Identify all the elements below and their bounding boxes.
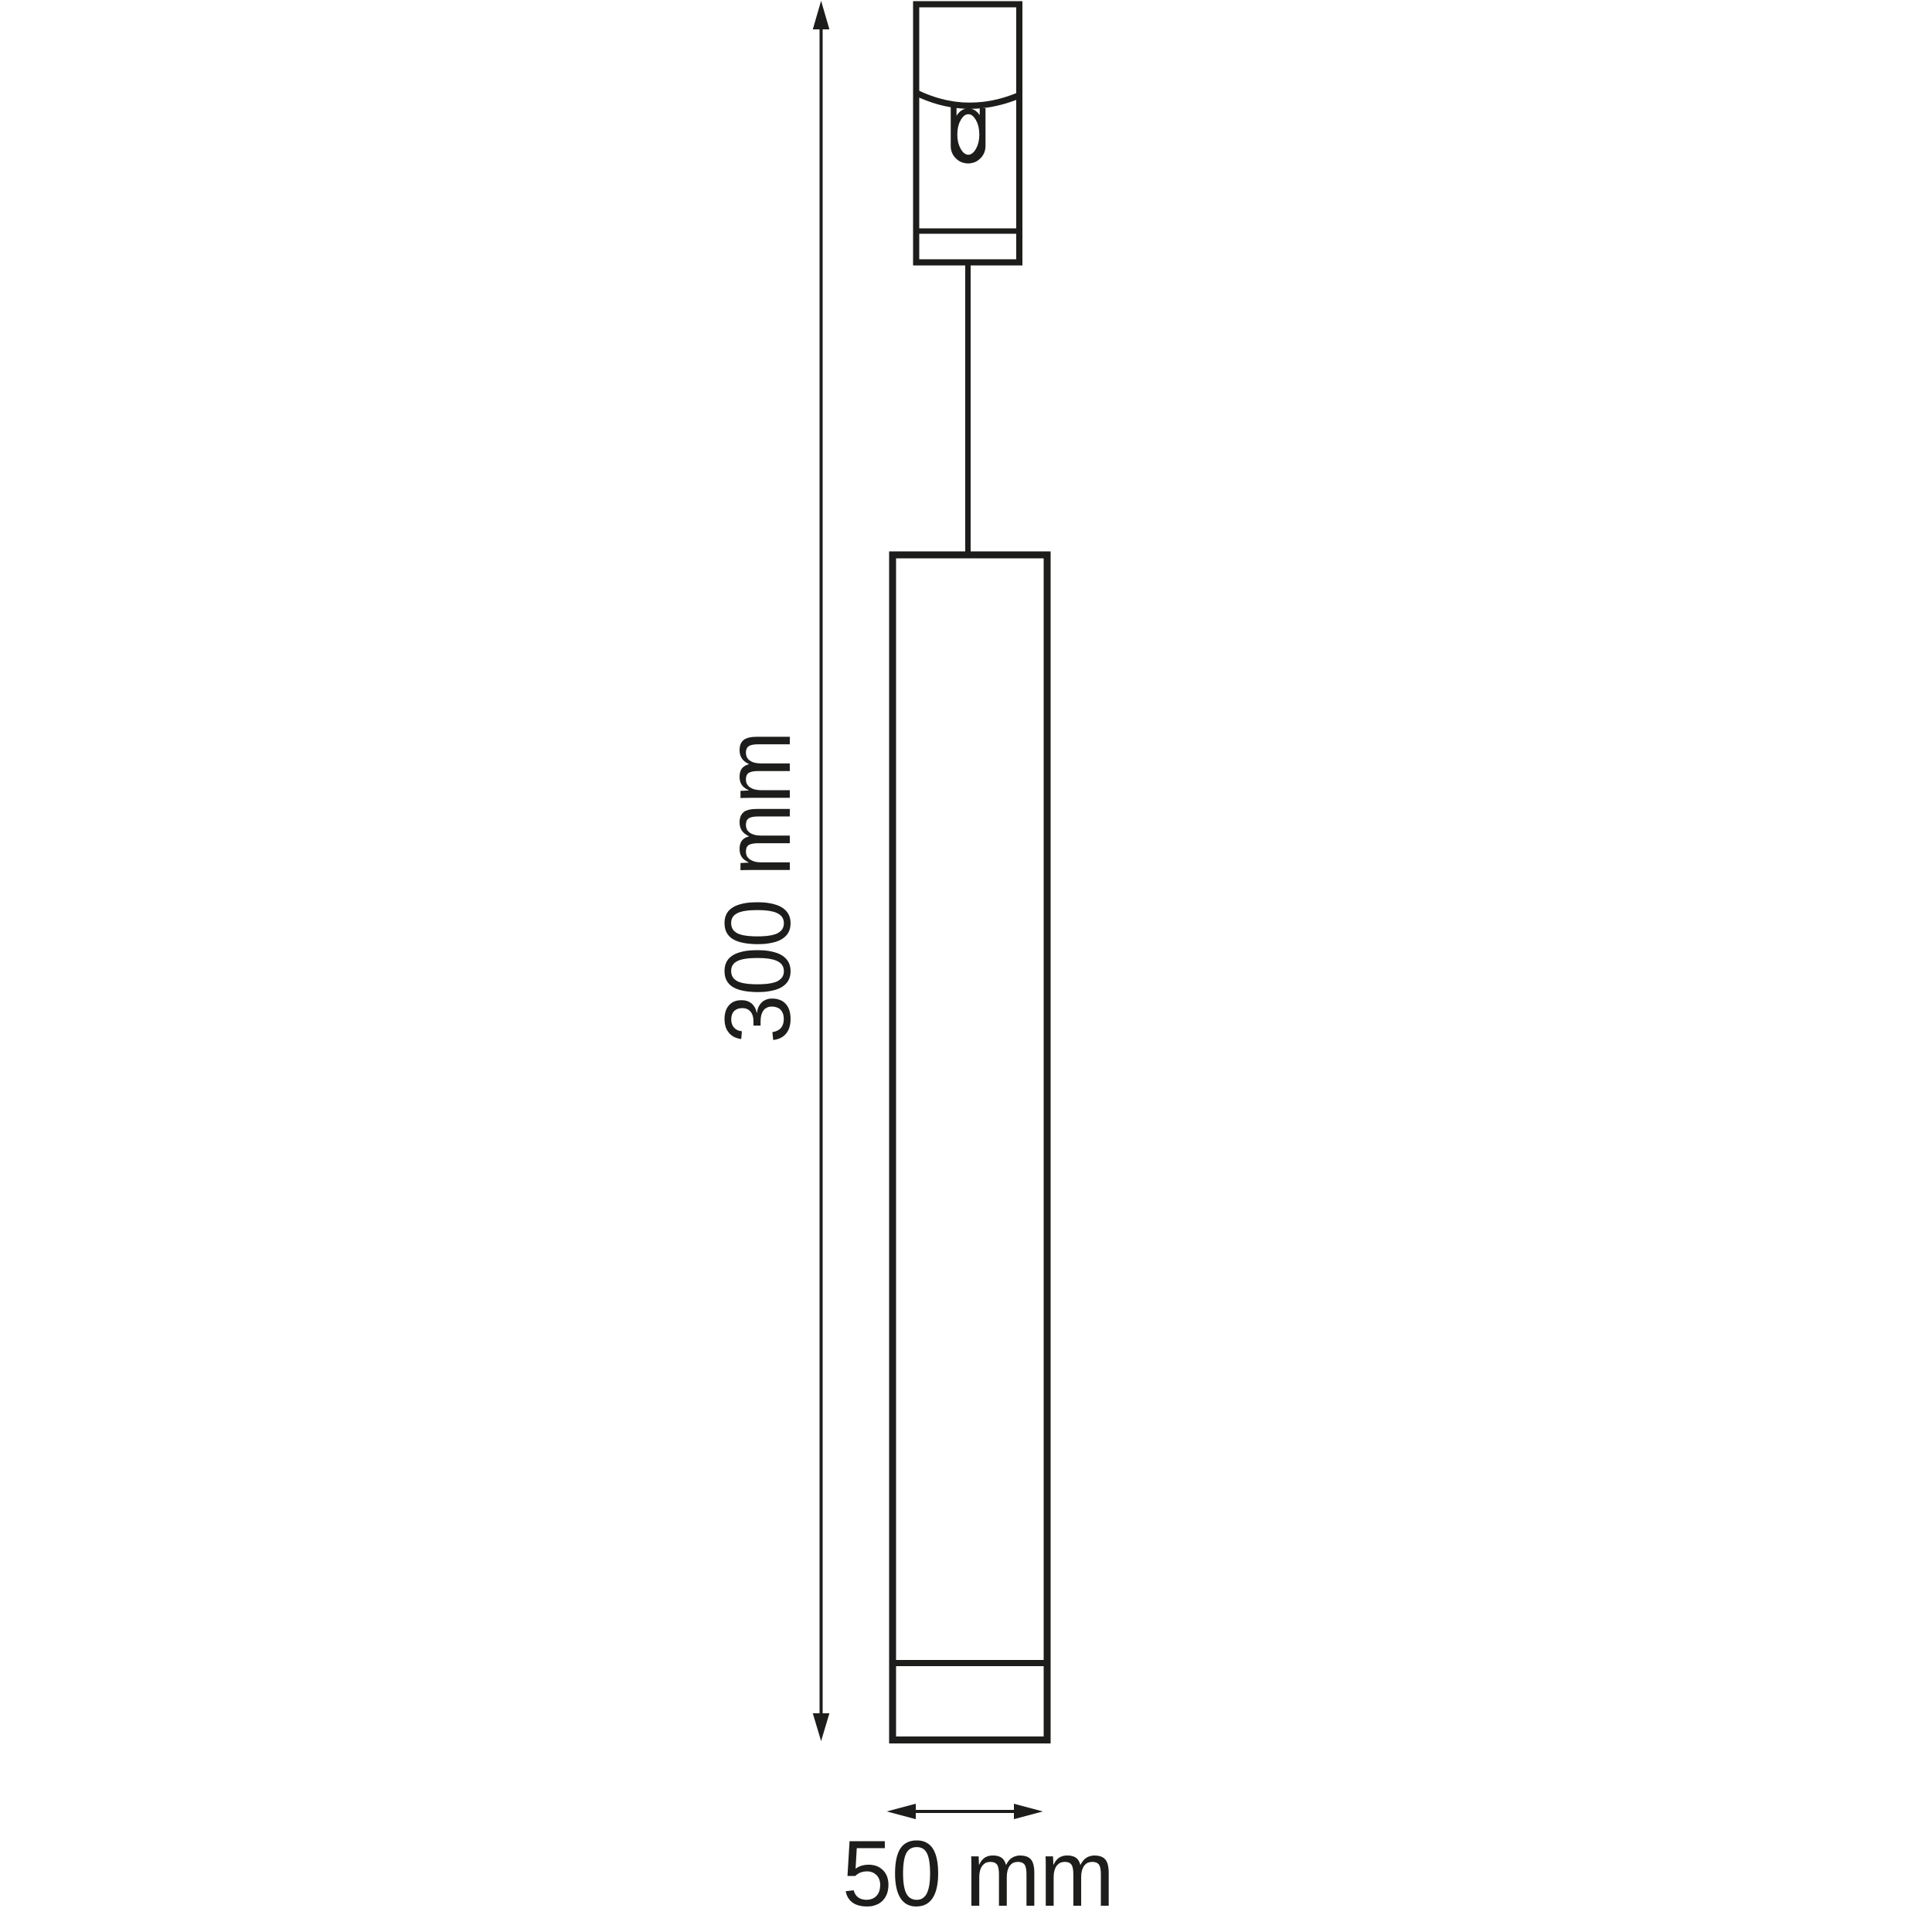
svg-text:300 mm: 300 mm (706, 732, 810, 1043)
svg-text:50 mm: 50 mm (842, 1821, 1114, 1926)
